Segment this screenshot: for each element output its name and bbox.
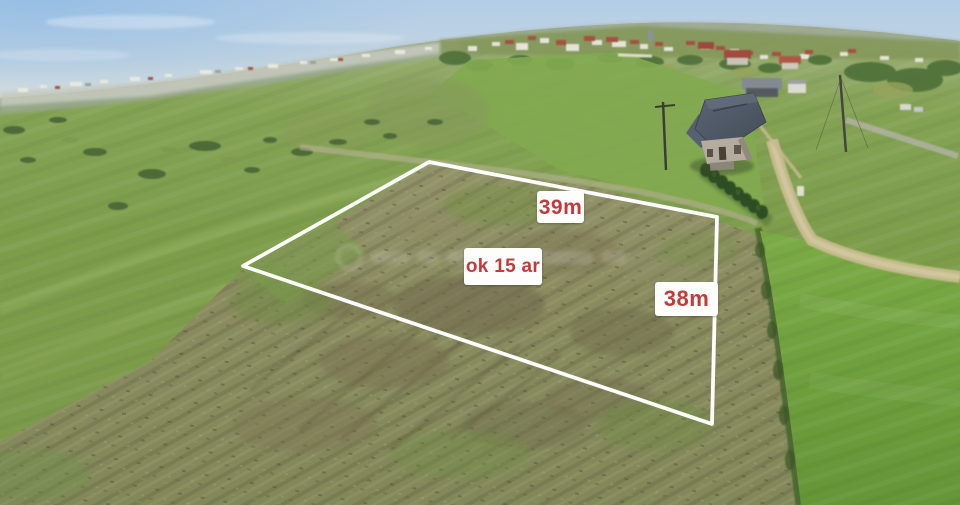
plot-area-label: ok 15 ar bbox=[464, 248, 542, 285]
aerial-photo-canvas: 39m ok 15 ar 38m bbox=[0, 0, 960, 505]
plot-width-label: 39m bbox=[537, 191, 584, 223]
plot-depth-label: 38m bbox=[655, 282, 718, 316]
